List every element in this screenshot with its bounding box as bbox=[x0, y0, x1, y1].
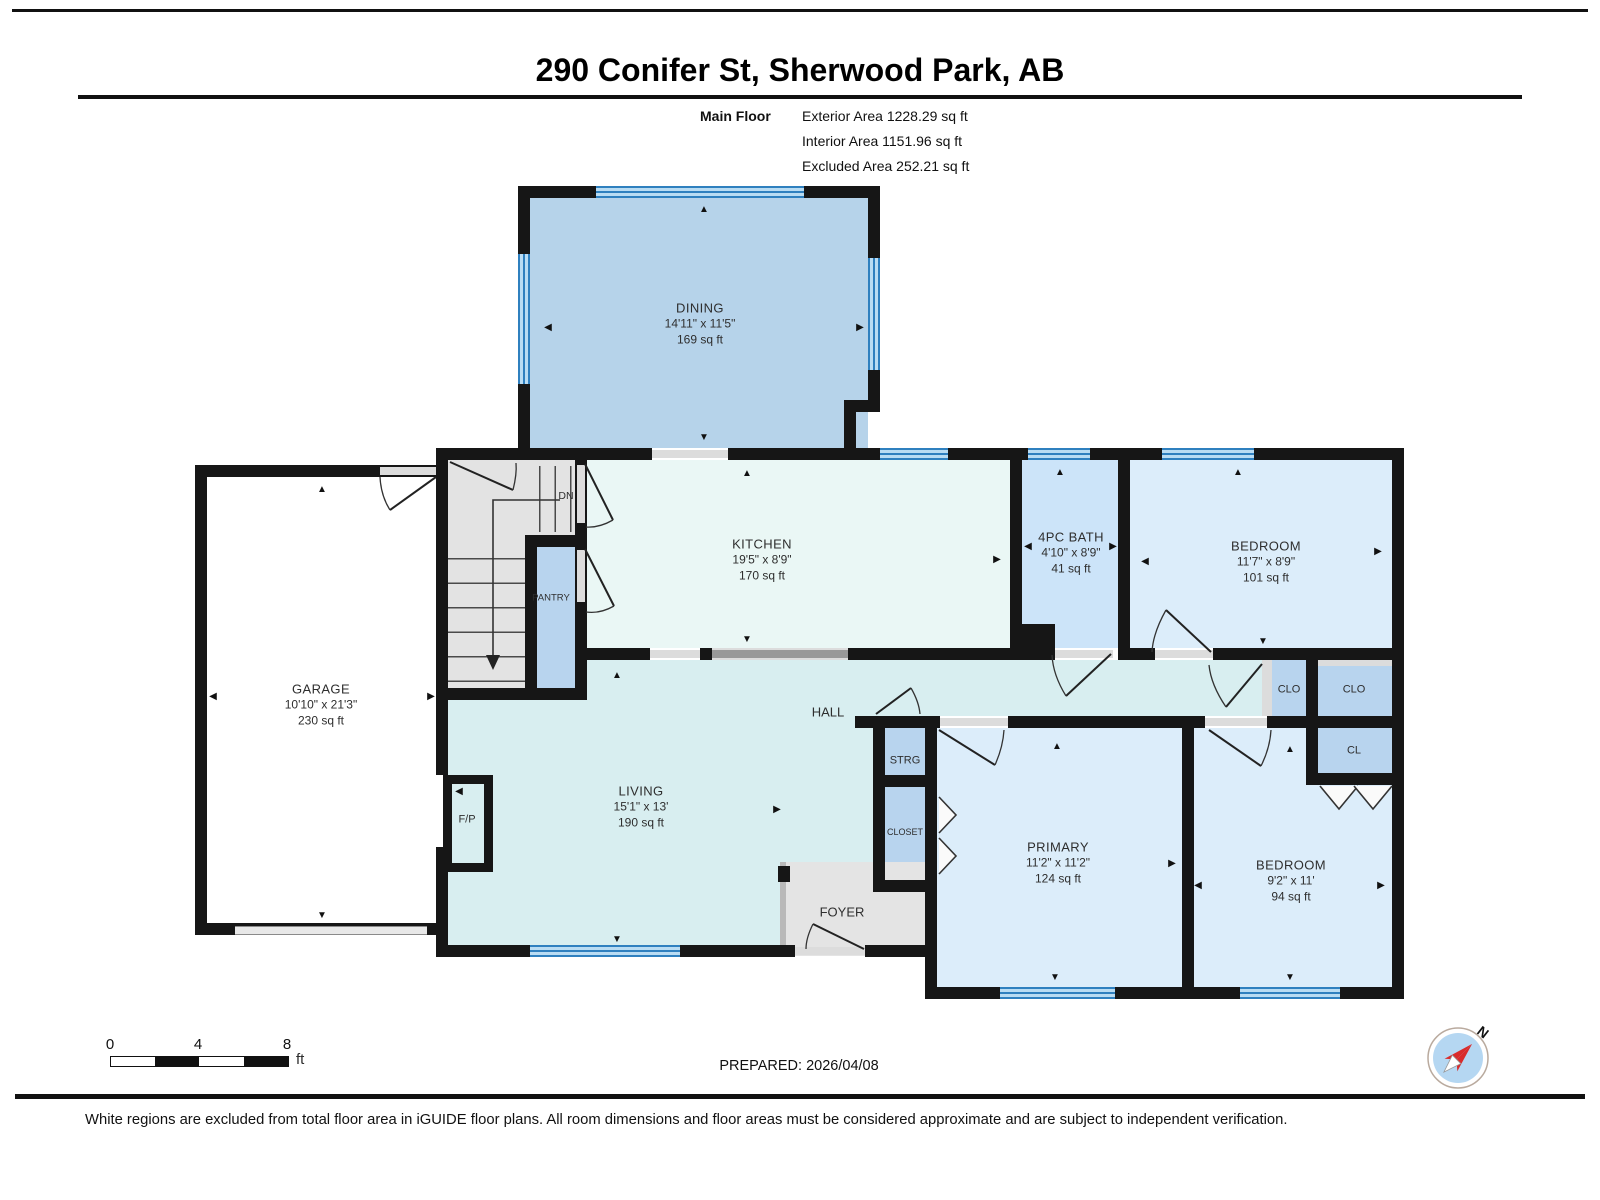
arrow-up-icon: ▲ bbox=[317, 485, 327, 495]
arrow-up-icon: ▲ bbox=[1055, 468, 1065, 478]
arrow-right-icon: ▶ bbox=[1109, 542, 1117, 552]
wall-segment bbox=[1306, 648, 1318, 785]
room-name: DINING bbox=[665, 300, 736, 317]
room-dims: 19'5" x 8'9" bbox=[732, 553, 792, 569]
door-opening bbox=[1155, 650, 1213, 658]
wall-segment bbox=[436, 460, 448, 775]
arrow-left-icon: ◀ bbox=[209, 692, 217, 702]
excluded-area: Excluded Area 252.21 sq ft bbox=[802, 158, 969, 174]
wall-segment bbox=[525, 535, 537, 700]
window bbox=[1162, 448, 1254, 460]
door-opening bbox=[650, 650, 700, 658]
arrow-left-icon: ◀ bbox=[1194, 881, 1202, 891]
arrow-down-icon: ▼ bbox=[1285, 973, 1295, 983]
wall-segment bbox=[873, 716, 885, 892]
wall-segment bbox=[436, 448, 518, 460]
hall-label: HALL bbox=[812, 703, 845, 720]
arrow-down-icon: ▼ bbox=[612, 935, 622, 945]
arrow-right-icon: ▶ bbox=[773, 805, 781, 815]
room-name: LIVING bbox=[614, 783, 669, 800]
arrow-left-icon: ◀ bbox=[455, 787, 463, 797]
arrow-up-icon: ▲ bbox=[1285, 745, 1295, 755]
door-opening bbox=[940, 718, 1008, 726]
cl-label: CL bbox=[1347, 744, 1361, 759]
window bbox=[518, 254, 530, 384]
wall-segment bbox=[1267, 716, 1404, 728]
room-dims: 11'7" x 8'9" bbox=[1231, 555, 1301, 571]
room-label-kitchen: KITCHEN 19'5" x 8'9" 170 sq ft bbox=[732, 536, 792, 585]
wall-segment bbox=[436, 847, 448, 957]
wall-segment bbox=[1010, 460, 1022, 660]
arrow-right-icon: ▶ bbox=[1168, 859, 1176, 869]
door-opening bbox=[577, 550, 585, 602]
door-opening bbox=[380, 467, 436, 475]
door-opening bbox=[1205, 718, 1267, 726]
arrow-down-icon: ▼ bbox=[1050, 973, 1060, 983]
arrow-right-icon: ▶ bbox=[856, 323, 864, 333]
room-label-garage: GARAGE 10'10" x 21'3" 230 sq ft bbox=[285, 681, 358, 730]
arrow-up-icon: ▲ bbox=[742, 469, 752, 479]
floorplan-page: 290 Conifer St, Sherwood Park, AB Main F… bbox=[0, 0, 1600, 1200]
top-border-rule bbox=[12, 9, 1588, 12]
foyer-label: FOYER bbox=[820, 903, 865, 920]
counter-cap bbox=[700, 648, 712, 660]
wall-segment bbox=[1182, 716, 1194, 999]
window bbox=[530, 945, 680, 957]
wall-segment bbox=[518, 448, 652, 460]
counter-cap bbox=[848, 648, 860, 660]
staircase bbox=[448, 535, 525, 700]
arrow-up-icon: ▲ bbox=[1233, 468, 1243, 478]
room-name: KITCHEN bbox=[732, 536, 792, 553]
disclaimer-text: White regions are excluded from total fl… bbox=[85, 1112, 1287, 1128]
room-dims: 15'1" x 13' bbox=[614, 800, 669, 816]
room-name: BEDROOM bbox=[1231, 538, 1301, 555]
scale-tick-0: 0 bbox=[106, 1036, 114, 1053]
arrow-right-icon: ▶ bbox=[993, 555, 1001, 565]
wall-segment bbox=[1008, 716, 1205, 728]
arrow-right-icon: ▶ bbox=[427, 692, 435, 702]
arrow-down-icon: ▼ bbox=[742, 635, 752, 645]
room-fill-hall bbox=[880, 660, 1262, 716]
room-label-bedroom-top: BEDROOM 11'7" x 8'9" 101 sq ft bbox=[1231, 538, 1301, 587]
page-title: 290 Conifer St, Sherwood Park, AB bbox=[536, 52, 1065, 89]
stairs-down-label: DN bbox=[558, 490, 573, 504]
wall-segment bbox=[1022, 624, 1055, 660]
prepared-date: PREPARED: 2026/04/08 bbox=[719, 1058, 878, 1074]
wall-segment bbox=[844, 400, 880, 412]
floor-label: Main Floor bbox=[700, 108, 771, 124]
clo-right-label: CLO bbox=[1343, 683, 1366, 698]
arrow-up-icon: ▲ bbox=[612, 671, 622, 681]
door-opening bbox=[1318, 660, 1392, 666]
window bbox=[596, 186, 804, 198]
scale-tick-4: 4 bbox=[194, 1036, 202, 1053]
room-area: 230 sq ft bbox=[285, 714, 358, 730]
room-name: GARAGE bbox=[285, 681, 358, 698]
room-area: 190 sq ft bbox=[614, 816, 669, 832]
window bbox=[880, 448, 948, 460]
door-opening bbox=[577, 465, 585, 523]
wall-segment bbox=[575, 648, 650, 660]
footer-rule bbox=[15, 1094, 1585, 1099]
garage-door bbox=[235, 926, 427, 935]
room-label-bedroom-bottom: BEDROOM 9'2" x 11' 94 sq ft bbox=[1256, 857, 1326, 906]
room-label-living: LIVING 15'1" x 13' 190 sq ft bbox=[614, 783, 669, 832]
pantry-label: PANTRY bbox=[532, 593, 570, 606]
room-area: 170 sq ft bbox=[732, 569, 792, 585]
wall-segment bbox=[778, 866, 790, 882]
room-area: 124 sq ft bbox=[1026, 872, 1090, 888]
arrow-right-icon: ▶ bbox=[1377, 881, 1385, 891]
room-name: PRIMARY bbox=[1026, 839, 1090, 856]
wall-segment bbox=[195, 465, 207, 935]
arrow-left-icon: ◀ bbox=[1141, 557, 1149, 567]
window bbox=[1240, 987, 1340, 999]
room-dims: 10'10" x 21'3" bbox=[285, 698, 358, 714]
closet-label: CLOSET bbox=[887, 827, 923, 839]
room-area: 101 sq ft bbox=[1231, 571, 1301, 587]
room-dims: 14'11" x 11'5" bbox=[665, 317, 736, 333]
exterior-area: Exterior Area 1228.29 sq ft bbox=[802, 108, 968, 124]
room-area: 169 sq ft bbox=[665, 333, 736, 349]
clo-left-label: CLO bbox=[1278, 683, 1301, 698]
door-opening bbox=[795, 947, 865, 955]
wall-segment bbox=[865, 945, 937, 957]
room-label-dining: DINING 14'11" x 11'5" 169 sq ft bbox=[665, 300, 736, 349]
room-dims: 9'2" x 11' bbox=[1256, 874, 1326, 890]
arrow-up-icon: ▲ bbox=[1052, 742, 1062, 752]
room-label-primary: PRIMARY 11'2" x 11'2" 124 sq ft bbox=[1026, 839, 1090, 888]
scale-tick-8: 8 bbox=[283, 1036, 291, 1053]
scale-bar bbox=[110, 1056, 289, 1067]
room-name: BEDROOM bbox=[1256, 857, 1326, 874]
arrow-down-icon: ▼ bbox=[317, 911, 327, 921]
window bbox=[1000, 987, 1115, 999]
wall-segment bbox=[1118, 448, 1130, 660]
title-rule bbox=[78, 95, 1522, 99]
kitchen-counter bbox=[712, 650, 848, 658]
arrow-down-icon: ▼ bbox=[699, 433, 709, 443]
door-opening bbox=[1055, 650, 1113, 658]
room-fill-pantry bbox=[537, 547, 575, 688]
fireplace-label: F/P bbox=[458, 813, 475, 828]
arrow-left-icon: ◀ bbox=[1024, 542, 1032, 552]
wall-segment bbox=[1306, 773, 1404, 785]
arrow-up-icon: ▲ bbox=[699, 205, 709, 215]
room-area: 41 sq ft bbox=[1038, 562, 1104, 578]
arrow-left-icon: ◀ bbox=[544, 323, 552, 333]
wall-segment bbox=[436, 688, 587, 700]
door-opening bbox=[1262, 660, 1272, 716]
scale-unit: ft bbox=[296, 1051, 304, 1068]
room-fill-kitchen bbox=[587, 460, 1010, 648]
wall-segment bbox=[1130, 648, 1155, 660]
wall-segment bbox=[728, 448, 856, 460]
room-area: 94 sq ft bbox=[1256, 890, 1326, 906]
arrow-down-icon: ▼ bbox=[1258, 637, 1268, 647]
room-name: 4PC BATH bbox=[1038, 529, 1104, 546]
window bbox=[1028, 448, 1090, 460]
room-dims: 11'2" x 11'2" bbox=[1026, 856, 1090, 872]
room-label-bath: 4PC BATH 4'10" x 8'9" 41 sq ft bbox=[1038, 529, 1104, 578]
room-dims: 4'10" x 8'9" bbox=[1038, 546, 1104, 562]
door-opening bbox=[652, 450, 728, 458]
arrow-right-icon: ▶ bbox=[1374, 547, 1382, 557]
strg-label: STRG bbox=[890, 754, 921, 769]
window bbox=[868, 258, 880, 370]
interior-area: Interior Area 1151.96 sq ft bbox=[802, 133, 962, 149]
wall-segment bbox=[860, 648, 1010, 660]
